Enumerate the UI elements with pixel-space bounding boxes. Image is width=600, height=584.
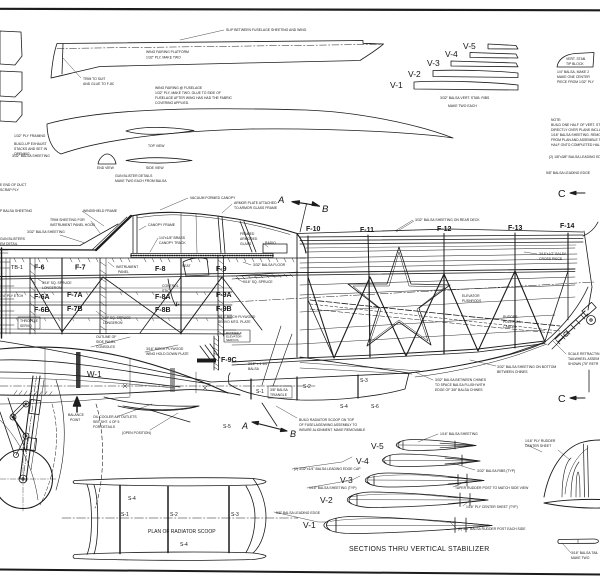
svg-text:PUSHRODS: PUSHRODS [462, 299, 482, 303]
svg-text:1/32" PLY, MAKE TWO: 1/32" PLY, MAKE TWO [146, 56, 181, 60]
svg-text:PLAN OF RADIATOR SCOOP: PLAN OF RADIATOR SCOOP [148, 529, 216, 535]
svg-text:S-4: S-4 [128, 496, 136, 502]
svg-text:CROSS PIECE: CROSS PIECE [539, 257, 563, 261]
svg-text:BUILD ONE HALF OF VERT. ST: BUILD ONE HALF OF VERT. ST [551, 123, 600, 127]
svg-text:3/32" BALSA SHEETING: 3/32" BALSA SHEETING [27, 230, 65, 234]
svg-text:F-9A: F-9A [216, 292, 232, 299]
svg-text:TAPER RUDDER POST TO MATCH SID: TAPER RUDDER POST TO MATCH SIDE VIEW [455, 486, 529, 490]
svg-text:F-8: F-8 [155, 266, 166, 273]
svg-text:CANOPY FRAME: CANOPY FRAME [148, 223, 176, 227]
svg-text:VACUUM FORMED CANOPY: VACUUM FORMED CANOPY [190, 196, 236, 200]
svg-text:3/16"x1/2" BALSA: 3/16"x1/2" BALSA [539, 252, 567, 256]
svg-text:1/16" PLY RUDDER: 1/16" PLY RUDDER [525, 439, 556, 443]
svg-text:SERVO: SERVO [20, 324, 32, 328]
svg-text:ELEVATOR: ELEVATOR [462, 294, 480, 298]
svg-text:5/8" BALSA LEADING EDGE: 5/8" BALSA LEADING EDGE [546, 171, 591, 175]
svg-text:F-14: F-14 [560, 223, 575, 230]
svg-text:B: B [290, 429, 296, 439]
svg-text:F-9B: F-9B [216, 306, 232, 313]
svg-text:SIDE PANEL: SIDE PANEL [96, 340, 116, 344]
svg-text:(2) 3/8" BALSA RUDDER POST EAC: (2) 3/8" BALSA RUDDER POST EACH SIDE [458, 527, 526, 531]
svg-text:FROM PLAN AND ASSEMBLE T: FROM PLAN AND ASSEMBLE T [551, 138, 600, 142]
svg-text:A: A [241, 421, 248, 431]
svg-text:F-8B: F-8B [155, 307, 171, 314]
svg-text:F-12: F-12 [437, 226, 452, 233]
svg-text:TIP BLOCK: TIP BLOCK [566, 62, 584, 66]
svg-text:END VIEW: END VIEW [97, 166, 115, 170]
svg-text:CENTER SHEET: CENTER SHEET [525, 444, 551, 448]
svg-text:V-2: V-2 [408, 69, 421, 79]
svg-text:WING FAIRING PLATFORM: WING FAIRING PLATFORM [146, 50, 189, 54]
svg-text:F-13: F-13 [508, 225, 523, 232]
svg-text:CANOPY TRACK: CANOPY TRACK [159, 241, 186, 245]
svg-text:WING FAIRING @ FUSELAGE: WING FAIRING @ FUSELAGE [155, 86, 203, 90]
svg-text:ARMORED: ARMORED [240, 237, 258, 241]
svg-text:VERT. STAB.: VERT. STAB. [566, 57, 586, 61]
svg-text:1/4" PLY ETCH: 1/4" PLY ETCH [0, 294, 24, 298]
svg-text:F-7B: F-7B [67, 306, 83, 313]
svg-text:1/16" BALSA SHEETING: 1/16" BALSA SHEETING [440, 432, 478, 436]
svg-text:OIL COOLER AIR OUTLETS: OIL COOLER AIR OUTLETS [93, 415, 137, 419]
svg-text:THROTTLE: THROTTLE [20, 319, 39, 323]
svg-text:1/16" BALSA SHEETING. REMO: 1/16" BALSA SHEETING. REMO [551, 133, 600, 137]
svg-text:1/4" BALSA, MAKE 2: 1/4" BALSA, MAKE 2 [557, 70, 589, 74]
svg-text:F-9: F-9 [216, 266, 227, 273]
svg-text:V-4: V-4 [445, 49, 458, 59]
svg-text:9/16" SQ. SPRUCE: 9/16" SQ. SPRUCE [243, 280, 273, 284]
svg-text:F-11: F-11 [360, 227, 374, 234]
svg-text:SCALE RETRACTIN: SCALE RETRACTIN [568, 352, 600, 356]
svg-text:3/16" SQ. SPRUCE: 3/16" SQ. SPRUCE [42, 281, 72, 285]
svg-text:S-4: S-4 [180, 542, 188, 548]
svg-text:TRIANGLE: TRIANGLE [270, 393, 288, 397]
svg-text:V-2: V-2 [320, 495, 333, 505]
svg-text:SEE SHT. 4 OF 5: SEE SHT. 4 OF 5 [93, 420, 119, 424]
svg-text:E END OF DUCT: E END OF DUCT [0, 183, 26, 187]
svg-text:BUILD-UP EXHAUST: BUILD-UP EXHAUST [14, 142, 47, 146]
svg-text:SCRAP PLY: SCRAP PLY [0, 188, 19, 192]
svg-text:INSTRUMENT PANEL HOOD: INSTRUMENT PANEL HOOD [50, 223, 96, 227]
svg-text:A: A [277, 195, 284, 206]
svg-text:1/4"x1/8" BRASS: 1/4"x1/8" BRASS [159, 236, 186, 240]
svg-text:PANEL: PANEL [118, 270, 129, 274]
svg-text:3/32" BALSA SHEETING: 3/32" BALSA SHEETING [12, 154, 50, 158]
svg-text:3/16" BIRCH PLYWOOD: 3/16" BIRCH PLYWOOD [146, 347, 184, 351]
svg-text:V-5: V-5 [371, 441, 384, 451]
svg-text:V-1: V-1 [303, 520, 316, 530]
svg-text:SECTIONS THRU VERTICAL STABILI: SECTIONS THRU VERTICAL STABILIZER [349, 546, 489, 553]
svg-text:3/16" x 1 1/4": 3/16" x 1 1/4" [248, 362, 269, 366]
svg-text:SEAT: SEAT [182, 264, 191, 268]
svg-text:POINT: POINT [70, 418, 80, 422]
svg-text:SLIP BETWEEN FUSELAGE SHEETING: SLIP BETWEEN FUSELAGE SHEETING AND WING [226, 28, 307, 32]
svg-text:FOR DETAILS: FOR DETAILS [93, 425, 116, 429]
svg-text:S-6: S-6 [371, 404, 379, 410]
svg-text:F-6A: F-6A [34, 294, 50, 301]
svg-text:V-3: V-3 [340, 475, 353, 485]
svg-text:C: C [558, 393, 566, 405]
svg-text:PULL-PULL: PULL-PULL [503, 320, 521, 324]
svg-text:SHOWN (75° RETR: SHOWN (75° RETR [568, 362, 599, 366]
svg-text:HALF ONTO COMPLETED HAL: HALF ONTO COMPLETED HAL [551, 143, 600, 147]
svg-text:3/32" BALSA SHEETING ON BOTTOM: 3/32" BALSA SHEETING ON BOTTOM [497, 365, 556, 369]
svg-text:GUN BLISTERS: GUN BLISTERS [0, 237, 26, 241]
svg-text:NOTE:: NOTE: [551, 118, 561, 122]
svg-text:FUSELAGE AFTER WING HAS HAD TH: FUSELAGE AFTER WING HAS HAD THE FABRIC [155, 96, 233, 100]
svg-text:STACKS AND SET IN: STACKS AND SET IN [14, 147, 48, 151]
svg-text:W-1: W-1 [87, 370, 102, 379]
svg-text:TRIM SHEETING FOR: TRIM SHEETING FOR [50, 218, 85, 222]
svg-text:F-6B: F-6B [34, 307, 50, 314]
svg-text:CONTROL: CONTROL [162, 284, 179, 288]
svg-text:V-4: V-4 [356, 456, 369, 466]
svg-text:ARMOR PLATE ATTACHED: ARMOR PLATE ATTACHED [234, 201, 277, 205]
svg-text:FRAMED: FRAMED [240, 232, 255, 236]
svg-text:F-6: F-6 [34, 265, 45, 272]
svg-text:F-7A: F-7A [67, 292, 83, 299]
svg-text:3/32" BALSA FLOOR: 3/32" BALSA FLOOR [253, 263, 286, 267]
svg-text:BALSA: BALSA [248, 367, 260, 371]
svg-text:TOP VIEW: TOP VIEW [148, 144, 165, 148]
svg-text:TO ARMOR GLASS FRAME: TO ARMOR GLASS FRAME [234, 206, 278, 210]
svg-text:1/16" PLY CENTER SHEET (TYP): 1/16" PLY CENTER SHEET (TYP) [466, 505, 518, 509]
svg-text:TRIM TO SUIT: TRIM TO SUIT [83, 77, 105, 81]
svg-text:BUILD RADIATOR SCOOP ON TOP: BUILD RADIATOR SCOOP ON TOP [299, 418, 355, 422]
svg-text:STICK: STICK [162, 289, 173, 293]
svg-text:S-2: S-2 [303, 384, 311, 390]
svg-text:CONSOLES: CONSOLES [96, 345, 116, 349]
svg-text:TAILWHEEL ASSEM: TAILWHEEL ASSEM [568, 357, 599, 361]
svg-text:BETWEEN CHINES: BETWEEN CHINES [497, 370, 528, 374]
svg-text:S-1: S-1 [121, 512, 129, 518]
svg-text:(2) 1/8"x3/8" BALSA LEADING ED: (2) 1/8"x3/8" BALSA LEADING EDGE CAP [549, 155, 600, 159]
svg-text:P BALSA SHEETING: P BALSA SHEETING [0, 209, 33, 213]
svg-text:WINDSHIELD FRAME: WINDSHIELD FRAME [83, 209, 118, 213]
svg-text:3/32" BALSA VERT. STAB. RIBS: 3/32" BALSA VERT. STAB. RIBS [440, 96, 490, 100]
svg-text:1/32" PLY, MAKE TWO. GLUE TO S: 1/32" PLY, MAKE TWO. GLUE TO SIDE OF [155, 91, 221, 95]
svg-text:INSURE ALIGNMENT. MAKE REMOVAB: INSURE ALIGNMENT. MAKE REMOVABLE [299, 428, 366, 432]
svg-text:1/4" SQ. SPRUCE: 1/4" SQ. SPRUCE [103, 316, 132, 320]
svg-text:WING HOLD DOWN PLATE: WING HOLD DOWN PLATE [146, 352, 189, 356]
svg-text:MAKE ONE CENTER: MAKE ONE CENTER [557, 75, 590, 79]
svg-text:MAKE TWO EACH FROM BALSA: MAKE TWO EACH FROM BALSA [115, 179, 167, 183]
svg-text:LONGERON: LONGERON [42, 286, 62, 290]
svg-text:GLASS: GLASS [240, 242, 252, 246]
svg-text:F-8A: F-8A [155, 294, 171, 301]
svg-text:V-3: V-3 [427, 58, 440, 68]
svg-text:INSTRUMENT: INSTRUMENT [116, 265, 138, 269]
svg-text:3/16" BALSA TAIL: 3/16" BALSA TAIL [571, 551, 598, 555]
svg-text:3/16" BIRCH PLYWOOD: 3/16" BIRCH PLYWOOD [218, 315, 256, 319]
svg-text:SIDE VIEW: SIDE VIEW [146, 166, 164, 170]
svg-text:GUN BLISTER DETAILS: GUN BLISTER DETAILS [115, 174, 153, 178]
svg-text:3/32" BALSA SHEETING ON REAR D: 3/32" BALSA SHEETING ON REAR DECK [415, 218, 480, 222]
svg-text:DIRECTLY OVER PLANS INCLU: DIRECTLY OVER PLANS INCLU [551, 128, 600, 132]
svg-text:V-1: V-1 [390, 80, 403, 90]
svg-text:1/16" BALSA SHEETING (TYP): 1/16" BALSA SHEETING (TYP) [309, 486, 357, 490]
svg-text:3/32" BALSA RIBS (TYP): 3/32" BALSA RIBS (TYP) [477, 469, 515, 473]
svg-text:MAKE TWO EACH: MAKE TWO EACH [448, 104, 477, 108]
svg-text:CABLES: CABLES [503, 325, 517, 329]
svg-text:AND GLUE TO F-8C: AND GLUE TO F-8C [83, 82, 115, 86]
svg-text:LONGERON: LONGERON [103, 321, 123, 325]
svg-text:BALANCE: BALANCE [68, 413, 85, 417]
svg-text:S-4: S-4 [340, 404, 348, 410]
svg-text:B: B [322, 204, 329, 215]
svg-text:EDGE OF 3/8" BALSA CHINES: EDGE OF 3/8" BALSA CHINES [435, 388, 483, 392]
svg-text:OUTLINE OF: OUTLINE OF [96, 335, 116, 339]
svg-text:1/32" PLY FRAMING: 1/32" PLY FRAMING [14, 134, 46, 138]
svg-text:SERVOS: SERVOS [226, 338, 238, 342]
svg-text:3/8" BALSA: 3/8" BALSA [270, 388, 289, 392]
svg-text:RADIO: RADIO [265, 241, 276, 245]
svg-text:S-3: S-3 [231, 512, 239, 518]
svg-text:MAKE TWO: MAKE TWO [571, 556, 590, 560]
svg-text:F-9C: F-9C [221, 357, 237, 364]
svg-text:SERVO MTG. PLATE: SERVO MTG. PLATE [218, 320, 251, 324]
svg-text:TB-1: TB-1 [11, 265, 23, 271]
svg-text:TO SPACE BALSA FLUSH WITH: TO SPACE BALSA FLUSH WITH [435, 383, 486, 387]
svg-text:RUDDER: RUDDER [503, 315, 518, 319]
svg-text:EM DETAIL: EM DETAIL [0, 242, 18, 246]
svg-text:3/32" BALSA BETWEEN CHINES: 3/32" BALSA BETWEEN CHINES [435, 378, 487, 382]
svg-text:S-5: S-5 [223, 424, 231, 430]
svg-text:F-7: F-7 [75, 265, 86, 272]
svg-text:S-2: S-2 [170, 512, 178, 518]
svg-text:S-1: S-1 [256, 389, 264, 395]
svg-text:V-5: V-5 [463, 41, 476, 51]
svg-text:5/8" BALSA LEADING EDGE: 5/8" BALSA LEADING EDGE [276, 511, 321, 515]
svg-text:(OPEN POSITION): (OPEN POSITION) [122, 431, 151, 435]
svg-text:C: C [558, 188, 566, 200]
svg-text:OF FUSELAGE/WING ASSEMBLY TO: OF FUSELAGE/WING ASSEMBLY TO [299, 423, 358, 427]
svg-text:F-10: F-10 [306, 226, 321, 233]
svg-text:S-3: S-3 [360, 378, 368, 384]
svg-text:COVERING APPLIED.: COVERING APPLIED. [155, 101, 189, 105]
svg-text:PIECE FROM 1/32" PLY: PIECE FROM 1/32" PLY [557, 80, 595, 84]
svg-text:(2) 3/32"x1/4" BALSA LEADING E: (2) 3/32"x1/4" BALSA LEADING EDGE CAP [294, 467, 361, 471]
